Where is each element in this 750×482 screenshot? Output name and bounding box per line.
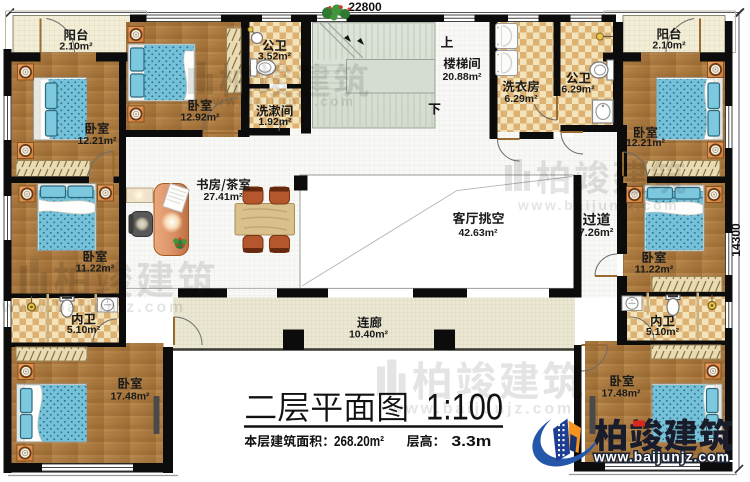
svg-text:www.baijunjz.com: www.baijunjz.com [593,450,730,465]
svg-text:3.52m²: 3.52m² [258,51,292,63]
svg-text:268.20m²: 268.20m² [334,434,384,450]
svg-text:17.48m²: 17.48m² [110,391,150,403]
svg-text:6.29m²: 6.29m² [561,84,595,96]
svg-text:7.26m²: 7.26m² [579,227,614,239]
svg-text:5.10m²: 5.10m² [646,326,680,338]
svg-text:12.21m²: 12.21m² [626,137,666,149]
svg-text:10.40m²: 10.40m² [349,329,389,341]
svg-text:www.baijunjz.com: www.baijunjz.com [517,197,679,213]
svg-text:12.92m²: 12.92m² [180,112,220,124]
svg-text:5.10m²: 5.10m² [67,324,101,336]
svg-text:1:100: 1:100 [426,387,503,428]
svg-text:20.88m²: 20.88m² [442,71,482,83]
svg-text:17.48m²: 17.48m² [601,388,641,400]
svg-text:www.baijunjz.com: www.baijunjz.com [199,94,355,109]
svg-text:www.baijunjz.com: www.baijunjz.com [1,299,186,316]
svg-text:42.63m²: 42.63m² [458,227,498,239]
svg-text:11.22m²: 11.22m² [635,264,674,276]
svg-text:2.10m²: 2.10m² [652,40,686,52]
svg-text:27.41m²: 27.41m² [203,191,243,203]
svg-text:6.29m²: 6.29m² [504,93,538,105]
svg-text:3.3m: 3.3m [451,434,491,450]
svg-text:12.21m²: 12.21m² [77,135,117,147]
svg-text:22800: 22800 [348,0,382,14]
svg-text:2.10m²: 2.10m² [59,41,93,53]
svg-text:1.92m²: 1.92m² [258,116,292,128]
